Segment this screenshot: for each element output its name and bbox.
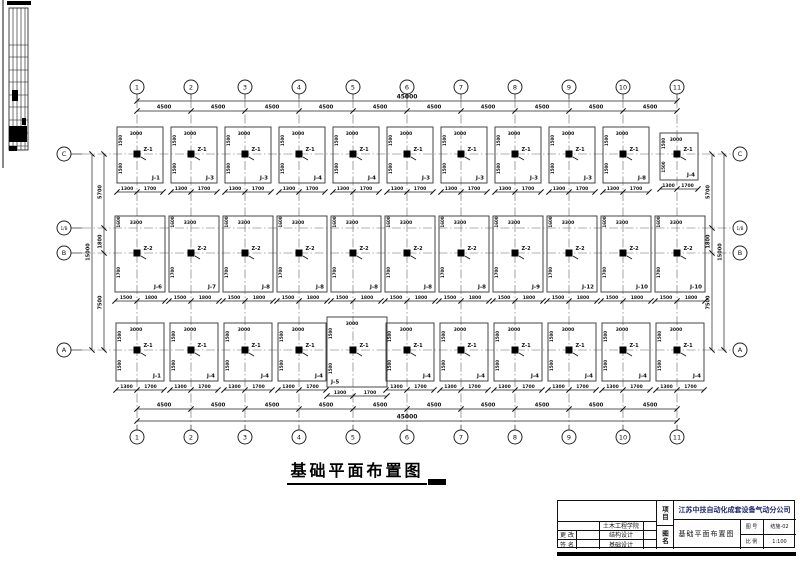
svg-text:J-3: J-3 (421, 176, 430, 182)
svg-text:1600: 1600 (224, 216, 229, 227)
svg-text:J-4: J-4 (530, 374, 539, 380)
svg-text:1700: 1700 (414, 186, 427, 192)
svg-text:B: B (62, 249, 66, 257)
footing: 3000Z-1J-41300170015001500 (599, 323, 652, 393)
svg-text:1600: 1600 (656, 216, 661, 227)
svg-text:3300: 3300 (508, 220, 521, 226)
svg-text:1500: 1500 (117, 331, 122, 342)
scale-label: 比 例 (740, 534, 763, 549)
column-marker (512, 151, 519, 158)
svg-text:1500: 1500 (328, 363, 333, 374)
footing: 3000Z-1J-31300170015001500 (546, 127, 597, 195)
svg-text:Z-2: Z-2 (629, 246, 639, 252)
column-marker (620, 250, 627, 257)
column-marker (620, 151, 627, 158)
svg-text:3300: 3300 (454, 220, 467, 226)
svg-text:1800: 1800 (98, 234, 104, 248)
svg-text:3000: 3000 (400, 327, 413, 333)
svg-text:11: 11 (673, 83, 681, 91)
svg-text:1500: 1500 (441, 331, 446, 342)
svg-text:Z-1: Z-1 (197, 343, 207, 349)
svg-text:1300: 1300 (444, 384, 457, 390)
svg-text:1300: 1300 (283, 186, 296, 192)
footing: 3000Z-1J-11300170015001500 (114, 127, 165, 195)
svg-text:4500: 4500 (211, 105, 226, 111)
svg-text:3: 3 (243, 433, 247, 441)
svg-text:1700: 1700 (522, 384, 535, 390)
svg-text:J-12: J-12 (581, 285, 594, 291)
footing: 3000Z-1J-11300170015001500 (113, 323, 166, 393)
svg-text:A: A (738, 346, 743, 354)
svg-text:4500: 4500 (535, 403, 550, 409)
svg-text:1800: 1800 (307, 295, 320, 301)
svg-text:6: 6 (405, 83, 409, 91)
svg-text:1700: 1700 (522, 186, 535, 192)
svg-text:Z-2: Z-2 (521, 246, 531, 252)
footing: 3000Z-1J-41300170015001500 (330, 127, 381, 195)
svg-text:1800: 1800 (706, 234, 712, 248)
svg-text:1600: 1600 (278, 216, 283, 227)
footing: 3000Z-1J-51300170015001500 (324, 317, 389, 399)
svg-text:1500: 1500 (442, 135, 447, 146)
svg-text:3000: 3000 (184, 131, 197, 137)
svg-text:1500: 1500 (334, 163, 339, 174)
svg-text:1300: 1300 (662, 183, 675, 189)
svg-text:Z-1: Z-1 (251, 147, 261, 153)
svg-text:10: 10 (619, 83, 627, 91)
svg-text:3000: 3000 (670, 137, 683, 143)
svg-text:J-3: J-3 (205, 176, 214, 182)
svg-text:1500: 1500 (496, 163, 501, 174)
svg-text:1300: 1300 (606, 384, 619, 390)
svg-text:Z-2: Z-2 (413, 246, 423, 252)
svg-text:5: 5 (351, 83, 355, 91)
svg-text:1700: 1700 (468, 384, 481, 390)
svg-text:J-4: J-4 (638, 374, 647, 380)
svg-text:1700: 1700 (252, 186, 265, 192)
svg-text:3000: 3000 (292, 131, 305, 137)
svg-text:5700: 5700 (98, 185, 104, 199)
column-marker (134, 151, 141, 158)
svg-text:1700: 1700 (364, 390, 377, 396)
svg-text:J-10: J-10 (689, 285, 702, 291)
svg-text:1300: 1300 (660, 384, 673, 390)
svg-text:1300: 1300 (334, 390, 347, 396)
svg-text:7500: 7500 (706, 295, 712, 309)
svg-text:1/B: 1/B (61, 226, 68, 231)
footing: 3300Z-2J-101500180016001700 (598, 216, 653, 304)
title-block-bottom-bar (557, 552, 796, 556)
svg-text:J-4: J-4 (206, 374, 215, 380)
scale-bar (428, 479, 446, 485)
svg-text:1700: 1700 (576, 186, 589, 192)
footing: 3000Z-1J-41300170015001500 (383, 323, 436, 393)
footing: 3300Z-2J-91500180016001700 (490, 216, 545, 304)
svg-text:3000: 3000 (562, 327, 575, 333)
drawing-sheet: 4500045004500450045004500450045004500450… (0, 0, 800, 563)
column-marker (134, 347, 141, 354)
sheet-name-label: 图名 (656, 525, 673, 549)
svg-text:1300: 1300 (228, 384, 241, 390)
svg-text:4500: 4500 (265, 403, 280, 409)
footing: 3000Z-1J-41300170015001500 (221, 323, 274, 393)
drawing-no-value: 结施-02 (763, 519, 796, 534)
svg-text:4500: 4500 (157, 105, 172, 111)
svg-text:Z-1: Z-1 (305, 147, 315, 153)
column-marker (674, 250, 681, 257)
column-marker (242, 151, 249, 158)
svg-text:45000: 45000 (397, 414, 418, 421)
column-marker (458, 347, 465, 354)
svg-text:3000: 3000 (454, 327, 467, 333)
svg-text:Z-1: Z-1 (413, 147, 423, 153)
svg-text:3000: 3000 (562, 131, 575, 137)
svg-text:3000: 3000 (346, 131, 359, 137)
column-marker (296, 250, 303, 257)
svg-text:4500: 4500 (319, 403, 334, 409)
footing: 3000Z-1J-41300170015001500 (275, 323, 328, 393)
svg-text:1500: 1500 (388, 163, 393, 174)
svg-text:Z-2: Z-2 (143, 246, 153, 252)
drawing-no-label: 图 号 (740, 519, 763, 534)
school-name: 土木工程学院 (599, 521, 643, 530)
svg-text:J-5: J-5 (330, 380, 339, 386)
svg-text:J-4: J-4 (313, 176, 322, 182)
svg-text:2: 2 (189, 433, 193, 441)
svg-text:1700: 1700 (332, 267, 337, 278)
svg-text:1500: 1500 (334, 135, 339, 146)
svg-text:11: 11 (673, 433, 681, 441)
svg-text:1700: 1700 (548, 267, 553, 278)
structural-design-label: 结构设计 (599, 530, 643, 539)
svg-text:Z-1: Z-1 (467, 147, 477, 153)
svg-text:1500: 1500 (328, 328, 333, 339)
foundation-design-label: 基础设计 (599, 539, 643, 549)
svg-text:1500: 1500 (118, 163, 123, 174)
svg-text:1: 1 (135, 433, 139, 441)
footing: 3000Z-1J-41300170015001500 (167, 323, 220, 393)
svg-text:Z-1: Z-1 (521, 343, 531, 349)
svg-text:1800: 1800 (577, 295, 590, 301)
svg-text:3300: 3300 (670, 220, 683, 226)
svg-text:1700: 1700 (198, 186, 211, 192)
svg-text:1500: 1500 (279, 360, 284, 371)
svg-text:Z-1: Z-1 (629, 147, 639, 153)
svg-text:3300: 3300 (400, 220, 413, 226)
svg-text:1500: 1500 (661, 161, 666, 172)
svg-text:1500: 1500 (226, 163, 231, 174)
svg-text:3000: 3000 (616, 131, 629, 137)
svg-text:3000: 3000 (508, 131, 521, 137)
svg-text:1500: 1500 (550, 163, 555, 174)
svg-text:1300: 1300 (390, 384, 403, 390)
footing: 3000Z-1J-31300170015001500 (492, 127, 543, 195)
svg-text:1500: 1500 (171, 360, 176, 371)
svg-text:4500: 4500 (265, 105, 280, 111)
svg-text:3000: 3000 (616, 327, 629, 333)
svg-text:J-4: J-4 (584, 374, 593, 380)
column-marker (350, 151, 357, 158)
svg-text:1500: 1500 (660, 295, 673, 301)
svg-text:1700: 1700 (602, 267, 607, 278)
svg-text:Z-1: Z-1 (305, 343, 315, 349)
svg-text:1300: 1300 (391, 186, 404, 192)
svg-text:J-8: J-8 (423, 285, 432, 291)
svg-text:3000: 3000 (292, 327, 305, 333)
svg-text:1500: 1500 (282, 295, 295, 301)
svg-text:4500: 4500 (481, 105, 496, 111)
svg-text:1300: 1300 (499, 186, 512, 192)
svg-text:1500: 1500 (280, 135, 285, 146)
svg-text:Z-1: Z-1 (359, 147, 369, 153)
svg-text:1600: 1600 (116, 216, 121, 227)
svg-text:J-4: J-4 (692, 374, 701, 380)
footing: 3300Z-2J-101500180016001700 (652, 216, 707, 304)
svg-text:1700: 1700 (468, 186, 481, 192)
svg-text:Z-2: Z-2 (197, 246, 207, 252)
svg-text:1700: 1700 (306, 384, 319, 390)
svg-text:4500: 4500 (535, 105, 550, 111)
svg-text:1700: 1700 (656, 267, 661, 278)
column-marker (512, 250, 519, 257)
svg-text:1: 1 (135, 83, 139, 91)
column-marker (404, 151, 411, 158)
footing: 3000Z-1J-41300170015001500 (437, 323, 490, 393)
svg-text:4500: 4500 (427, 105, 442, 111)
svg-text:J-3: J-3 (259, 176, 268, 182)
column-marker (188, 250, 195, 257)
svg-text:4500: 4500 (157, 403, 172, 409)
svg-text:3000: 3000 (400, 131, 413, 137)
svg-text:1800: 1800 (361, 295, 374, 301)
svg-text:3000: 3000 (238, 131, 251, 137)
svg-text:1/B: 1/B (737, 226, 744, 231)
svg-text:C: C (62, 150, 67, 158)
column-marker (188, 151, 195, 158)
svg-text:15000: 15000 (86, 243, 92, 261)
svg-text:Z-2: Z-2 (683, 246, 693, 252)
svg-text:Z-2: Z-2 (467, 246, 477, 252)
svg-text:1500: 1500 (604, 163, 609, 174)
svg-text:4500: 4500 (643, 403, 658, 409)
footing: 3000Z-1J-41300170015001500 (545, 323, 598, 393)
svg-text:4500: 4500 (211, 403, 226, 409)
svg-text:J-4: J-4 (314, 374, 323, 380)
column-marker (404, 250, 411, 257)
svg-text:1500: 1500 (172, 135, 177, 146)
svg-text:J-4: J-4 (686, 173, 695, 179)
scale-value: 1:100 (763, 534, 796, 549)
svg-text:Z-1: Z-1 (575, 343, 585, 349)
svg-text:3300: 3300 (346, 220, 359, 226)
svg-text:3300: 3300 (292, 220, 305, 226)
svg-text:5: 5 (351, 433, 355, 441)
svg-text:Z-1: Z-1 (467, 343, 477, 349)
svg-text:1500: 1500 (172, 163, 177, 174)
svg-text:3300: 3300 (184, 220, 197, 226)
svg-text:Z-1: Z-1 (521, 147, 531, 153)
svg-text:Z-1: Z-1 (251, 343, 261, 349)
svg-text:1500: 1500 (387, 360, 392, 371)
svg-text:1500: 1500 (657, 360, 662, 371)
svg-text:1600: 1600 (386, 216, 391, 227)
column-marker (674, 347, 681, 354)
svg-text:1700: 1700 (494, 267, 499, 278)
svg-text:1700: 1700 (144, 384, 157, 390)
svg-text:9: 9 (567, 433, 571, 441)
svg-text:1700: 1700 (278, 267, 283, 278)
svg-text:1500: 1500 (603, 331, 608, 342)
svg-text:7: 7 (459, 83, 463, 91)
svg-text:1600: 1600 (548, 216, 553, 227)
svg-text:1300: 1300 (445, 186, 458, 192)
svg-text:1600: 1600 (494, 216, 499, 227)
svg-text:1500: 1500 (336, 295, 349, 301)
svg-text:1300: 1300 (121, 186, 134, 192)
footing: 3300Z-2J-81500180016001700 (274, 216, 329, 304)
svg-text:Z-1: Z-1 (197, 147, 207, 153)
footing: 3000Z-1J-31300170015001500 (222, 127, 273, 195)
svg-text:4500: 4500 (481, 403, 496, 409)
svg-text:J-4: J-4 (367, 176, 376, 182)
column-marker (458, 151, 465, 158)
svg-text:15000: 15000 (718, 243, 724, 261)
svg-text:1500: 1500 (495, 331, 500, 342)
column-marker (566, 250, 573, 257)
svg-text:1700: 1700 (630, 186, 643, 192)
svg-text:3000: 3000 (238, 327, 251, 333)
svg-text:7: 7 (459, 433, 463, 441)
footing: 3000Z-1J-41300170015001500 (491, 323, 544, 393)
svg-text:J-8: J-8 (315, 285, 324, 291)
svg-text:1700: 1700 (360, 186, 373, 192)
svg-text:1600: 1600 (332, 216, 337, 227)
svg-text:4: 4 (297, 433, 301, 441)
svg-text:5700: 5700 (706, 185, 712, 199)
svg-text:4500: 4500 (373, 105, 388, 111)
svg-text:3000: 3000 (670, 327, 683, 333)
svg-text:1700: 1700 (576, 384, 589, 390)
column-marker (566, 151, 573, 158)
svg-text:1700: 1700 (144, 186, 157, 192)
svg-text:1500: 1500 (444, 295, 457, 301)
svg-text:Z-1: Z-1 (359, 343, 369, 349)
svg-text:J-1: J-1 (152, 374, 161, 380)
svg-text:1500: 1500 (387, 331, 392, 342)
svg-text:J-3: J-3 (529, 176, 538, 182)
svg-text:1300: 1300 (120, 384, 133, 390)
svg-text:J-7: J-7 (207, 285, 216, 291)
svg-text:8: 8 (513, 433, 517, 441)
svg-text:1500: 1500 (118, 135, 123, 146)
svg-text:J-4: J-4 (422, 374, 431, 380)
column-marker (134, 250, 141, 257)
svg-text:1700: 1700 (252, 384, 265, 390)
svg-text:Z-1: Z-1 (629, 343, 639, 349)
svg-text:Z-1: Z-1 (575, 147, 585, 153)
svg-text:2: 2 (189, 83, 193, 91)
svg-text:3000: 3000 (130, 327, 143, 333)
column-marker (512, 347, 519, 354)
svg-text:Z-1: Z-1 (143, 147, 153, 153)
drawing-name: 基础平面布置图 (673, 519, 740, 549)
footing: 3300Z-2J-71500180016001700 (166, 216, 221, 304)
change-label: 更 改 (558, 530, 576, 539)
svg-text:1500: 1500 (606, 295, 619, 301)
svg-text:1300: 1300 (174, 384, 187, 390)
svg-text:3000: 3000 (184, 327, 197, 333)
svg-text:J-4: J-4 (476, 374, 485, 380)
column-marker (188, 347, 195, 354)
svg-text:3: 3 (243, 83, 247, 91)
svg-text:3300: 3300 (130, 220, 143, 226)
svg-text:1300: 1300 (337, 186, 350, 192)
footing: 3000Z-1J-31300170015001500 (384, 127, 435, 195)
svg-text:J-8: J-8 (261, 285, 270, 291)
svg-text:B: B (738, 249, 742, 257)
svg-text:1500: 1500 (226, 135, 231, 146)
column-marker (242, 347, 249, 354)
svg-text:1500: 1500 (171, 331, 176, 342)
svg-text:1500: 1500 (390, 295, 403, 301)
svg-text:1300: 1300 (607, 186, 620, 192)
svg-text:1700: 1700 (224, 267, 229, 278)
svg-text:J-9: J-9 (531, 285, 540, 291)
svg-text:3000: 3000 (508, 327, 521, 333)
svg-text:1700: 1700 (198, 384, 211, 390)
svg-text:1800: 1800 (523, 295, 536, 301)
svg-text:1600: 1600 (602, 216, 607, 227)
svg-text:1500: 1500 (225, 360, 230, 371)
svg-text:9: 9 (567, 83, 571, 91)
svg-text:1700: 1700 (170, 267, 175, 278)
svg-text:1500: 1500 (496, 135, 501, 146)
svg-text:1500: 1500 (498, 295, 511, 301)
svg-text:4500: 4500 (427, 403, 442, 409)
svg-text:1700: 1700 (414, 384, 427, 390)
svg-text:1800: 1800 (199, 295, 212, 301)
title-block: 土木工程学院 更 改 结构设计 签 名 基础设计 项目 图名 江苏中技自动化成套… (557, 500, 795, 548)
svg-text:1800: 1800 (631, 295, 644, 301)
footing: 3300Z-2J-121500180016001700 (544, 216, 599, 304)
svg-text:1500: 1500 (552, 295, 565, 301)
svg-text:1500: 1500 (657, 331, 662, 342)
svg-text:3300: 3300 (562, 220, 575, 226)
project-label: 项目 (656, 501, 673, 525)
company-name: 江苏中技自动化成套设备气动分公司 (673, 501, 796, 519)
column-marker (296, 151, 303, 158)
svg-text:1800: 1800 (685, 295, 698, 301)
svg-text:1500: 1500 (174, 295, 187, 301)
svg-text:J-3: J-3 (583, 176, 592, 182)
svg-text:1500: 1500 (549, 331, 554, 342)
svg-text:J-3: J-3 (475, 176, 484, 182)
svg-text:6: 6 (405, 433, 409, 441)
svg-text:4500: 4500 (373, 403, 388, 409)
svg-text:8: 8 (513, 83, 517, 91)
svg-text:1300: 1300 (175, 186, 188, 192)
column-marker (458, 250, 465, 257)
svg-text:1500: 1500 (280, 163, 285, 174)
svg-text:Z-2: Z-2 (359, 246, 369, 252)
column-marker (566, 347, 573, 354)
svg-text:4500: 4500 (589, 105, 604, 111)
svg-text:3000: 3000 (130, 131, 143, 137)
svg-text:1600: 1600 (440, 216, 445, 227)
svg-text:J-1: J-1 (151, 176, 160, 182)
svg-text:1500: 1500 (604, 135, 609, 146)
svg-text:1700: 1700 (116, 267, 121, 278)
